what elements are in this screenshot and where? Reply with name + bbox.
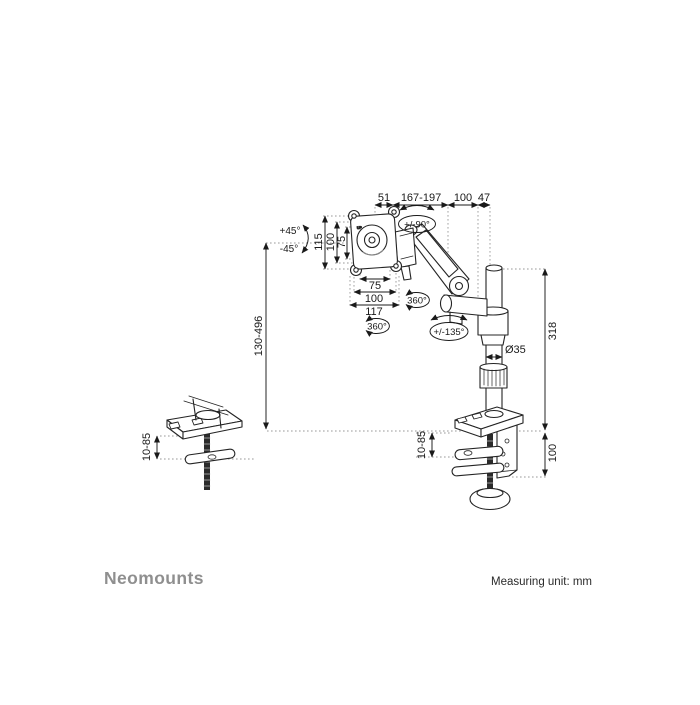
clamp-lower-bar xyxy=(452,463,505,476)
dim-top-47: 47 xyxy=(478,192,490,204)
dim-height-range: 130-496 xyxy=(253,316,265,356)
mount-drawing: UP xyxy=(349,207,524,510)
angle-rotation-vesa: 360° xyxy=(367,322,387,333)
dim-pole-diameter: Ø35 xyxy=(505,344,526,356)
dim-clamp-thickness: 10-85 xyxy=(416,431,428,459)
dim-vesa-v-115: 115 xyxy=(313,233,325,251)
angle-pivot: +/-90° xyxy=(404,220,430,231)
angle-rotation-pole: +/-135° xyxy=(433,327,464,338)
dim-vesa-v-75: 75 xyxy=(336,236,348,248)
product-dimension-diagram: UP xyxy=(0,0,700,700)
grommet-clamp-view xyxy=(167,396,242,490)
dim-vesa-h-75: 75 xyxy=(369,280,381,292)
vesa-plate: UP xyxy=(349,207,402,276)
brand-logo: Neomounts xyxy=(104,568,204,589)
angle-rotation-elbow: 360° xyxy=(407,296,427,307)
clamp-upper-bar xyxy=(455,446,504,460)
desk-clamp xyxy=(452,407,523,510)
angle-tilt-up: +45° xyxy=(280,226,301,237)
dim-top-100: 100 xyxy=(454,192,472,204)
dimension-drawing: UP xyxy=(0,0,700,700)
dim-grommet-thickness: 10-85 xyxy=(141,433,153,461)
clamp-rod xyxy=(487,434,493,490)
dim-clamp-depth: 100 xyxy=(547,444,559,462)
tilt-arrow xyxy=(302,225,308,253)
angle-tilt-down: -45° xyxy=(280,244,298,255)
vesa-bracket xyxy=(395,228,416,280)
dim-vesa-h-100: 100 xyxy=(365,293,383,305)
dim-pole-height: 318 xyxy=(547,322,559,340)
dim-vesa-h-117: 117 xyxy=(365,306,383,318)
dim-top-51: 51 xyxy=(378,192,390,204)
dim-top-arm-reach: 167-197 xyxy=(401,192,441,204)
measuring-unit-note: Measuring unit: mm xyxy=(491,576,592,588)
